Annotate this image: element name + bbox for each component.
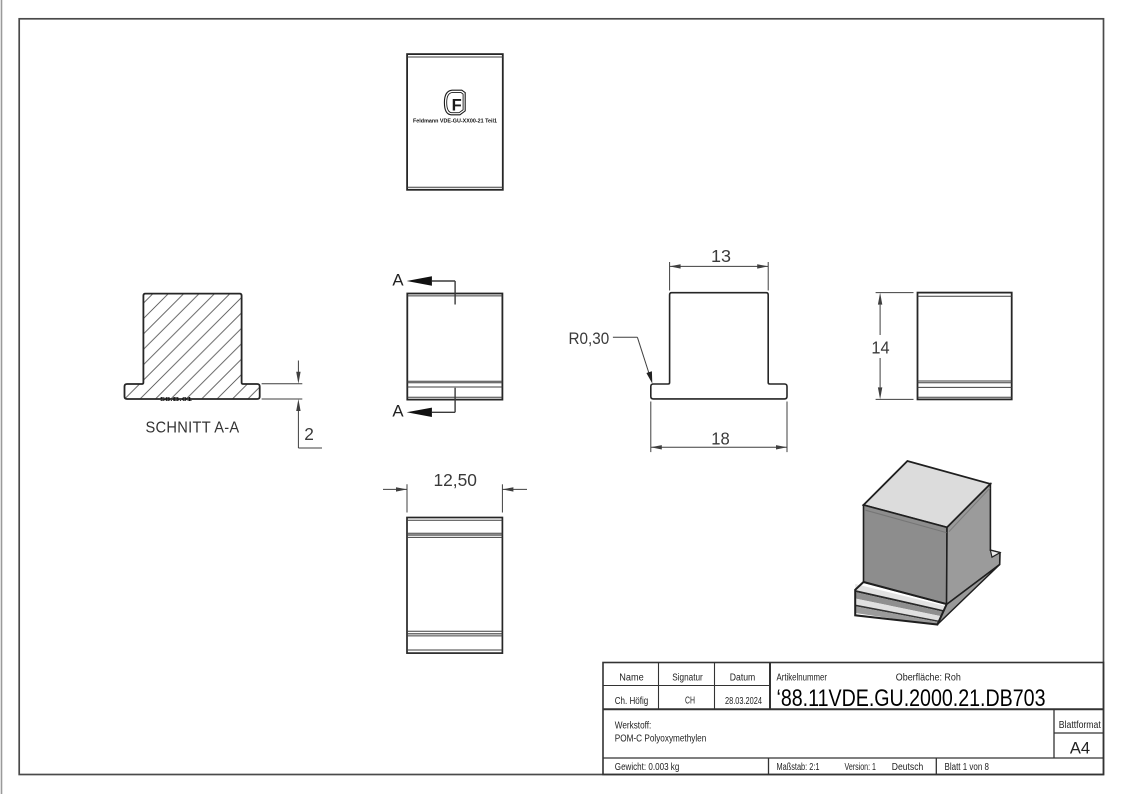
svg-text:A: A — [392, 271, 404, 290]
svg-text:Artikelnummer: Artikelnummer — [777, 673, 828, 684]
svg-text:Ch. Höfig: Ch. Höfig — [615, 696, 649, 707]
svg-text:POM-C Polyoxymethylen: POM-C Polyoxymethylen — [615, 734, 707, 745]
svg-text:18: 18 — [711, 428, 730, 448]
svg-text:2: 2 — [304, 424, 314, 444]
svg-text:13: 13 — [711, 246, 731, 266]
svg-text:Blattformat: Blattformat — [1059, 720, 1101, 731]
svg-text:CH: CH — [685, 696, 695, 707]
svg-text:12,50: 12,50 — [434, 470, 477, 490]
svg-text:R0,30: R0,30 — [569, 329, 610, 348]
svg-text:Name: Name — [619, 673, 644, 684]
svg-text:Datum: Datum — [730, 673, 756, 684]
svg-text:SCHNITT A-A: SCHNITT A-A — [146, 420, 240, 437]
svg-text:Gewicht: 0.003 kg: Gewicht: 0.003 kg — [615, 762, 680, 773]
svg-text:A4: A4 — [1070, 740, 1090, 758]
svg-text:A: A — [392, 401, 404, 420]
svg-text:Feldmann VDE-GU-XX00-21 Teil1: Feldmann VDE-GU-XX00-21 Teil1 — [413, 118, 497, 124]
svg-text:28.03.2024: 28.03.2024 — [725, 696, 762, 707]
svg-text:Werkstoff:: Werkstoff: — [615, 721, 652, 732]
svg-text:Signatur: Signatur — [672, 673, 703, 684]
svg-text:Oberfläche: Roh: Oberfläche: Roh — [896, 673, 961, 684]
svg-text:F: F — [452, 97, 462, 115]
svg-text:Maßstab: 2:1: Maßstab: 2:1 — [777, 762, 820, 773]
svg-text:Deutsch: Deutsch — [892, 762, 924, 773]
svg-text:Blatt 1 von 8: Blatt 1 von 8 — [945, 762, 990, 773]
svg-text:‘88.11VDE.GU.2000.21.DB703: ‘88.11VDE.GU.2000.21.DB703 — [777, 685, 1046, 712]
svg-text:58.B.01: 58.B.01 — [160, 397, 192, 403]
svg-text:Version: 1: Version: 1 — [845, 762, 877, 773]
svg-text:14: 14 — [871, 338, 890, 358]
